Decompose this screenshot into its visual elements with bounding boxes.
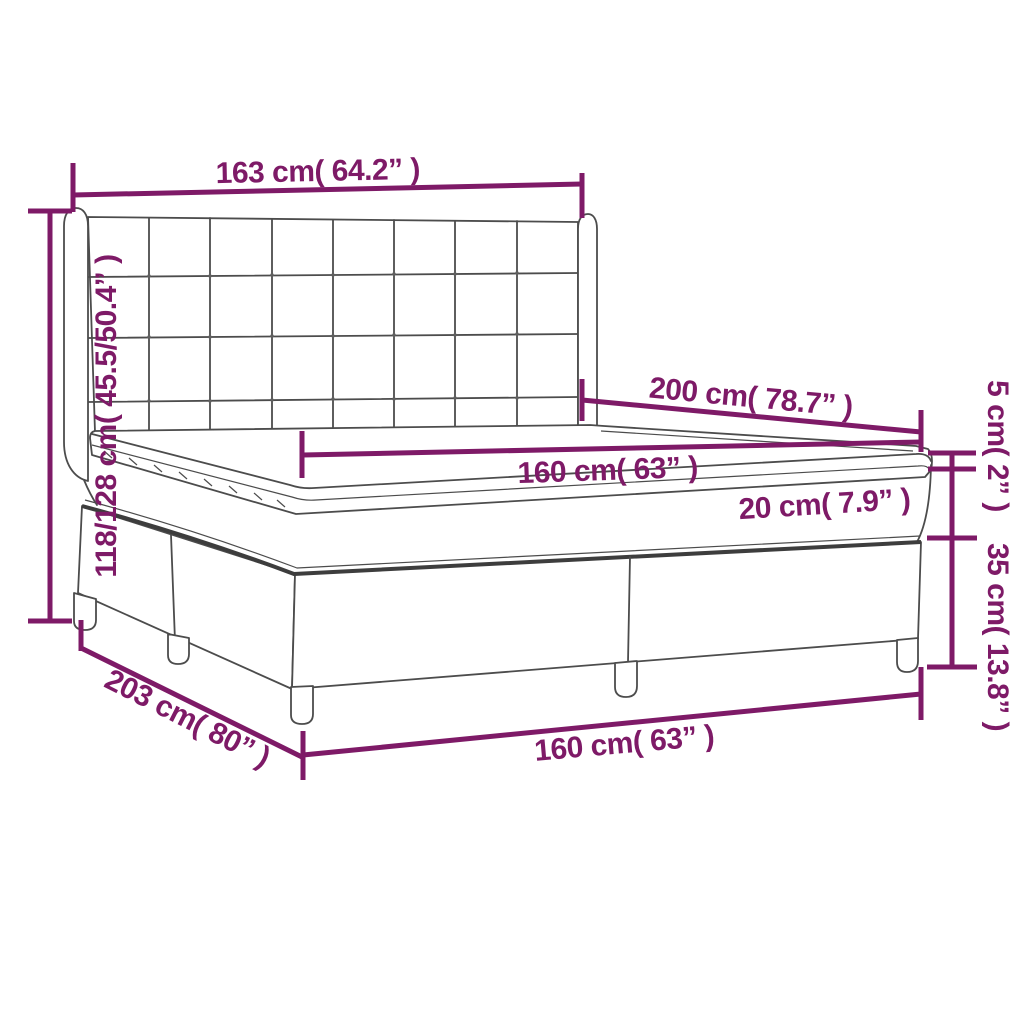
bed-artwork xyxy=(64,208,932,724)
box-spring-base xyxy=(78,500,921,689)
dim-overall-width: 160 cm( 63” ) xyxy=(303,667,921,768)
base-front-face xyxy=(292,542,921,689)
dim-label-topper-thickness: 5 cm( 2” ) xyxy=(981,380,1014,512)
dim-label-headboard-width: 163 cm( 64.2” ) xyxy=(215,153,420,190)
leg-back-left xyxy=(74,593,96,630)
bed-diagram-canvas: 163 cm( 64.2” ) 118/128 cm( 45.5/50.4” )… xyxy=(0,0,1024,1024)
dim-mattress-length: 200 cm( 78.7” ) xyxy=(582,372,921,432)
dimension-diagram: 163 cm( 64.2” ) 118/128 cm( 45.5/50.4” )… xyxy=(0,0,1024,1024)
dim-label-overall-width: 160 cm( 63” ) xyxy=(533,719,715,768)
leg-front-left xyxy=(291,686,313,724)
dim-label-overall-height: 118/128 cm( 45.5/50.4” ) xyxy=(90,254,123,577)
dim-label-mattress-thickness: 20 cm( 7.9” ) xyxy=(738,483,912,526)
dim-label-mattress-width: 160 cm( 63” ) xyxy=(517,451,698,490)
leg-front-right xyxy=(897,638,918,672)
leg-front-middle xyxy=(615,661,637,697)
dim-label-overall-length: 203 cm( 80” ) xyxy=(100,663,276,774)
dim-label-base-height: 35 cm( 13.8” ) xyxy=(981,543,1014,731)
headboard xyxy=(88,217,578,432)
dim-right-stack: 5 cm( 2” ) 35 cm( 13.8” ) xyxy=(927,380,1014,731)
dim-headboard-width: 163 cm( 64.2” ) xyxy=(73,153,582,218)
leg-left-middle xyxy=(168,634,189,664)
